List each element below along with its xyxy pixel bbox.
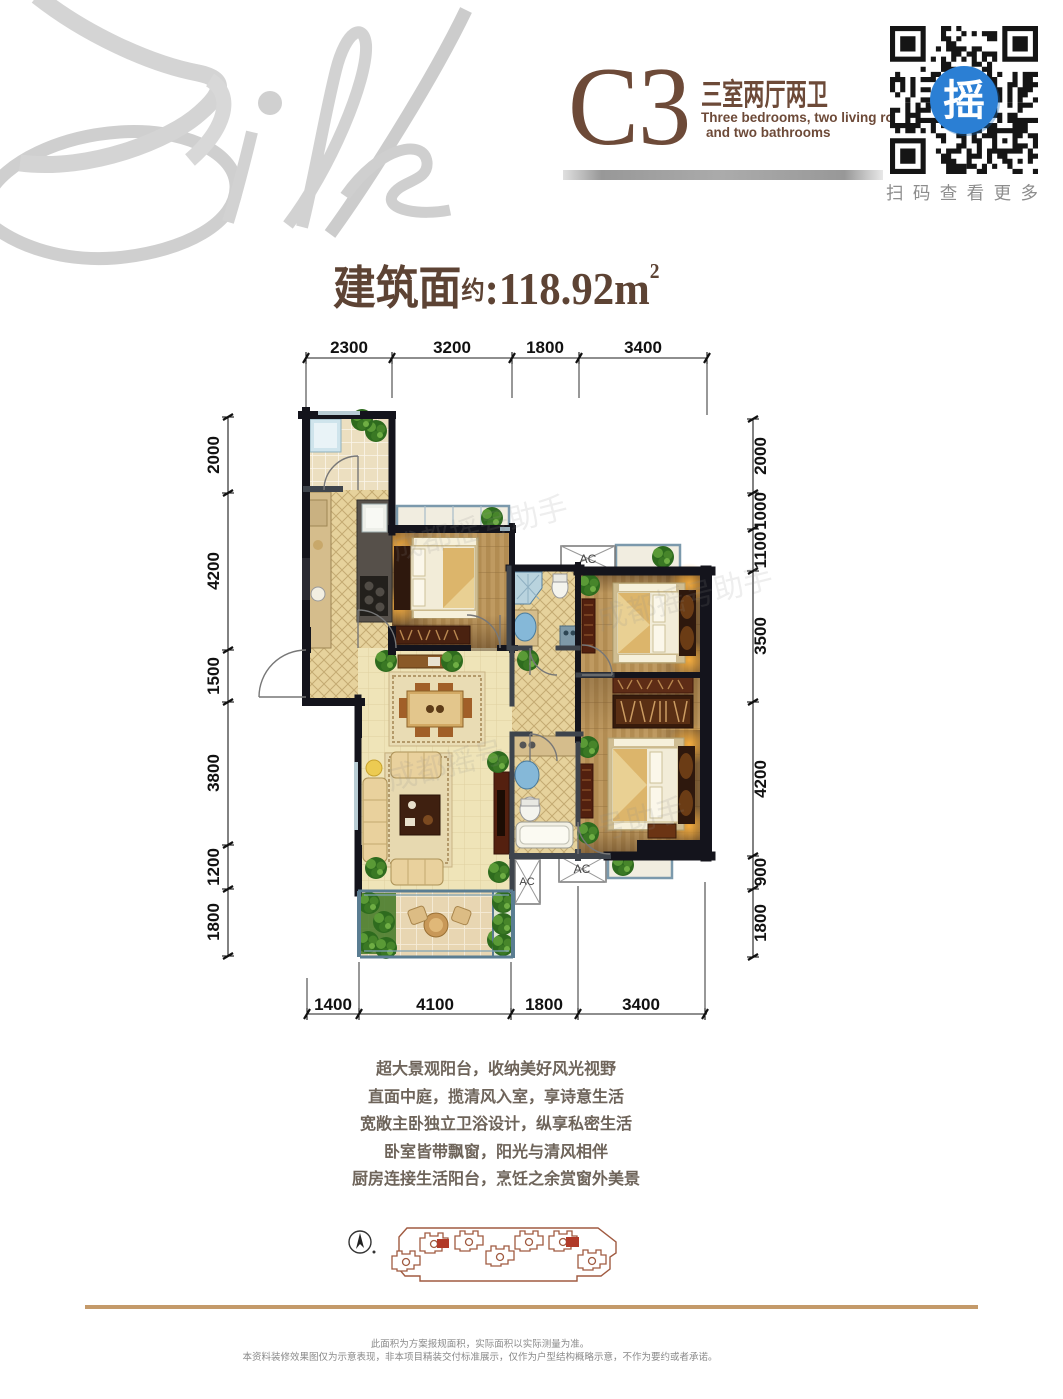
svg-text:1000: 1000 [751,492,770,530]
svg-text:1800: 1800 [204,903,223,941]
svg-text:1400: 1400 [314,995,352,1014]
svg-text:AC: AC [580,552,597,566]
svg-text:1500: 1500 [204,657,223,695]
svg-text:3800: 3800 [204,754,223,792]
svg-text:3200: 3200 [433,338,471,357]
svg-text:2300: 2300 [330,338,368,357]
svg-text:AC: AC [519,876,534,888]
svg-text:摇: 摇 [943,77,985,124]
svg-text:3400: 3400 [624,338,662,357]
svg-text:3400: 3400 [622,995,660,1014]
svg-text:1200: 1200 [204,848,223,886]
svg-text:4200: 4200 [751,760,770,798]
svg-text:2000: 2000 [204,436,223,474]
svg-text:2000: 2000 [751,437,770,475]
svg-text:4200: 4200 [204,552,223,590]
svg-text:1800: 1800 [526,338,564,357]
svg-text:3500: 3500 [751,617,770,655]
svg-text:900: 900 [751,858,770,886]
svg-text:1800: 1800 [525,995,563,1014]
svg-text:AC: AC [574,862,591,876]
svg-text:1800: 1800 [751,904,770,942]
svg-text:4100: 4100 [416,995,454,1014]
